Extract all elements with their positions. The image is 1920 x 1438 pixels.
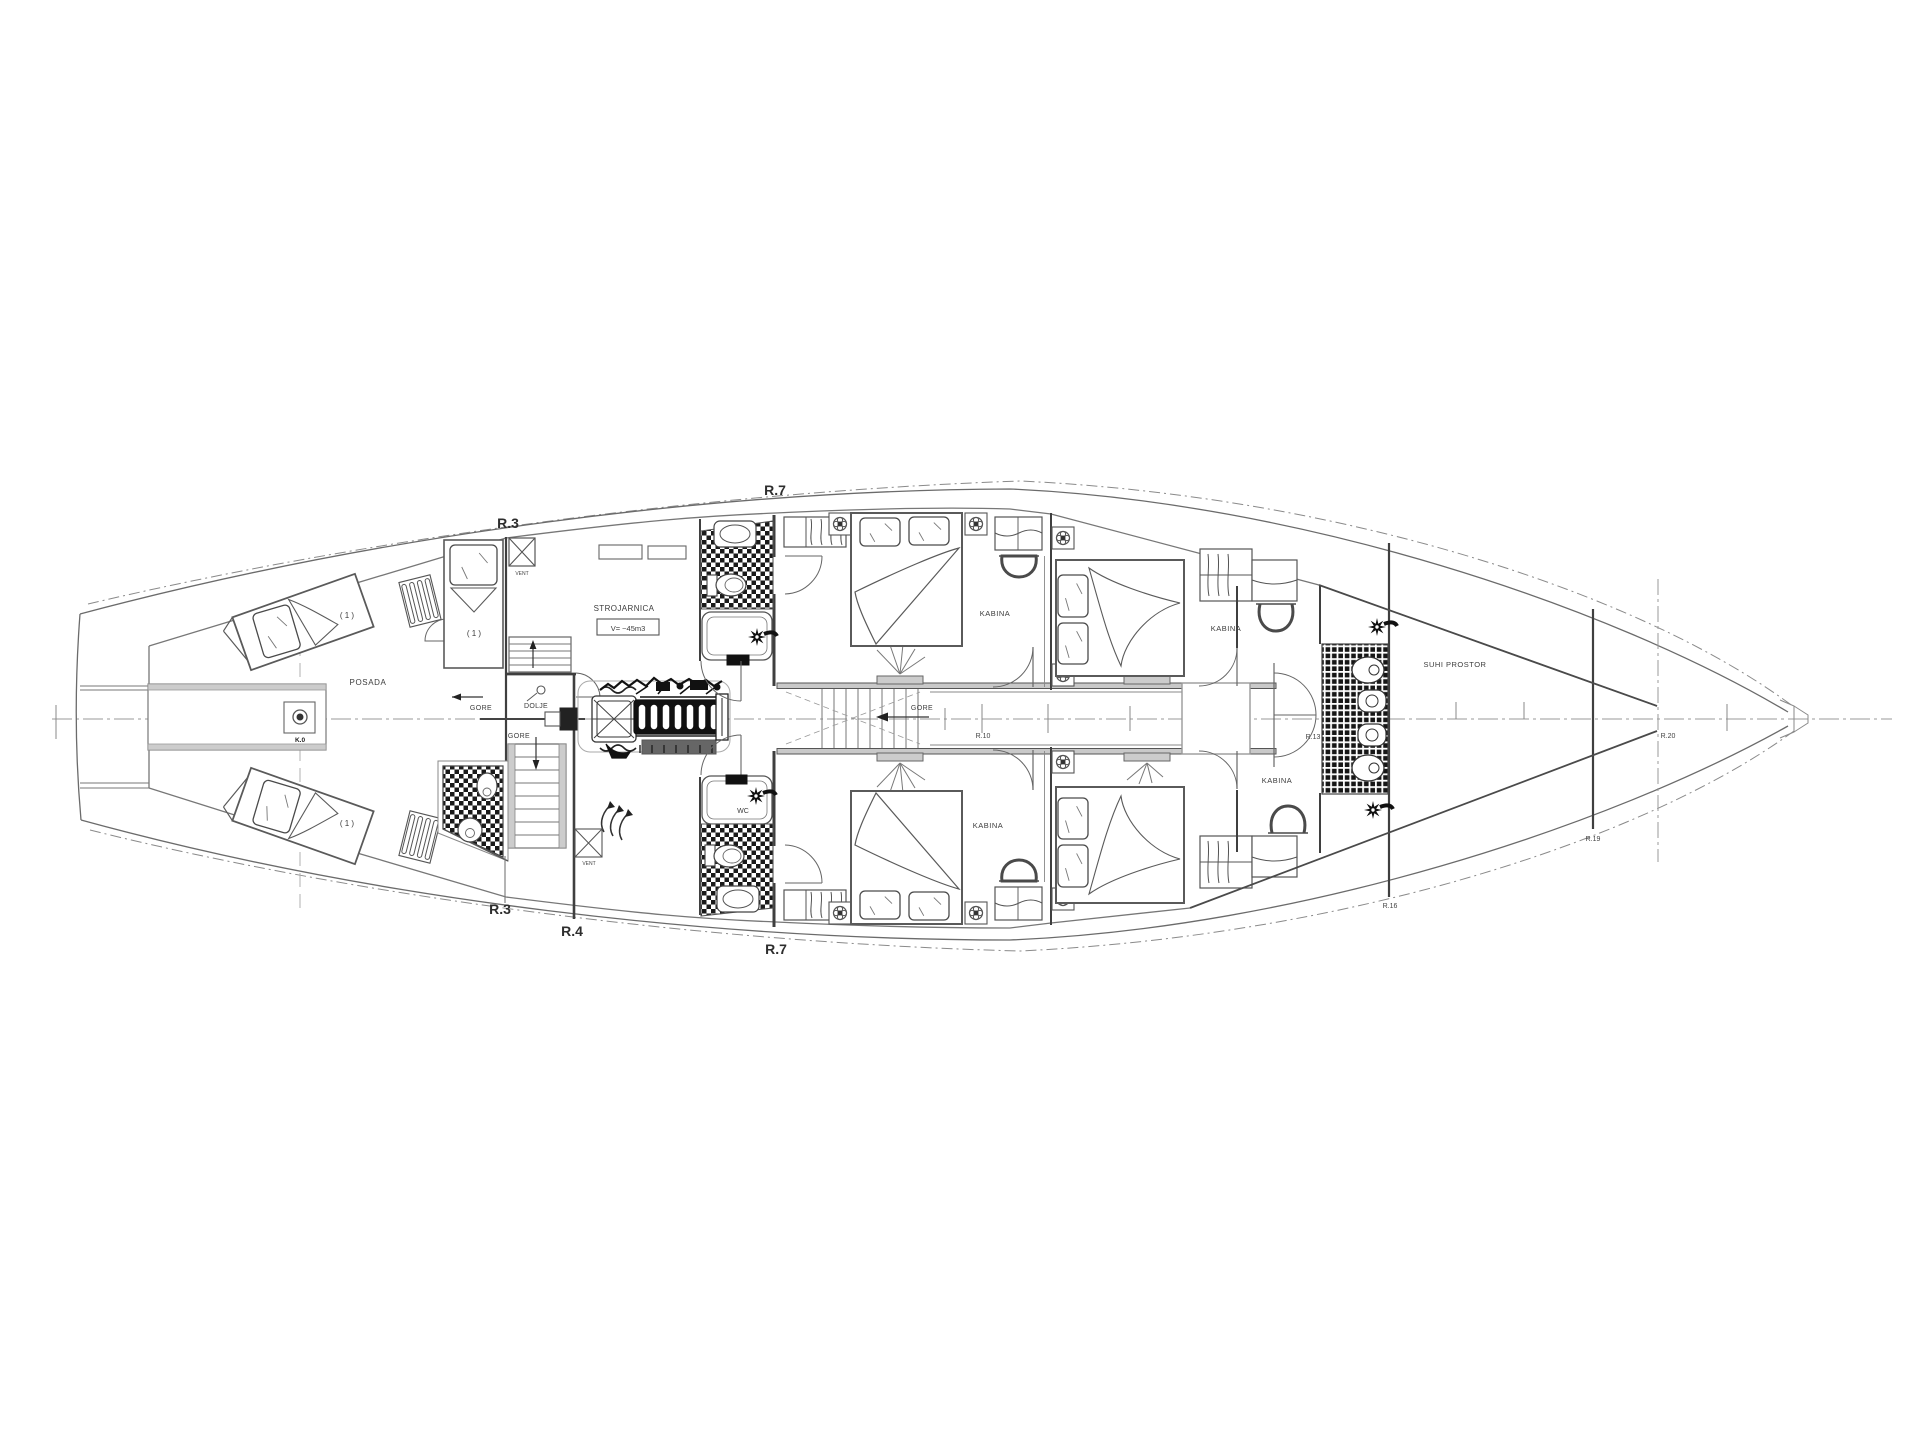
svg-text:R.7: R.7: [764, 482, 786, 498]
svg-text:R.16: R.16: [1383, 903, 1398, 910]
svg-text:KABINA: KABINA: [973, 821, 1004, 830]
svg-text:R.20: R.20: [1661, 733, 1676, 740]
svg-text:( 1 ): ( 1 ): [340, 819, 355, 828]
svg-text:STROJARNICA: STROJARNICA: [594, 604, 655, 613]
svg-text:R.4: R.4: [561, 923, 583, 939]
svg-text:SUHI PROSTOR: SUHI PROSTOR: [1424, 660, 1487, 669]
svg-text:DOLJE: DOLJE: [524, 703, 548, 710]
svg-text:R.10: R.10: [976, 733, 991, 740]
svg-text:KABINA: KABINA: [980, 609, 1011, 618]
svg-text:VENT: VENT: [582, 861, 595, 867]
svg-text:V= ~45m3: V= ~45m3: [611, 624, 646, 633]
svg-text:( 1 ): ( 1 ): [340, 611, 355, 620]
svg-text:R.19: R.19: [1586, 836, 1601, 843]
svg-text:R.3: R.3: [489, 901, 511, 917]
svg-text:K.0: K.0: [295, 737, 306, 744]
svg-text:GORE: GORE: [911, 705, 933, 712]
svg-text:R.3: R.3: [497, 515, 519, 531]
svg-text:GORE: GORE: [508, 733, 530, 740]
svg-text:R.7: R.7: [765, 941, 787, 957]
svg-text:WC: WC: [737, 808, 749, 815]
svg-text:( 1 ): ( 1 ): [467, 629, 482, 638]
svg-text:VENT: VENT: [515, 571, 528, 577]
svg-text:KABINA: KABINA: [1262, 776, 1293, 785]
svg-text:POSADA: POSADA: [350, 678, 387, 687]
svg-text:GORE: GORE: [470, 705, 492, 712]
